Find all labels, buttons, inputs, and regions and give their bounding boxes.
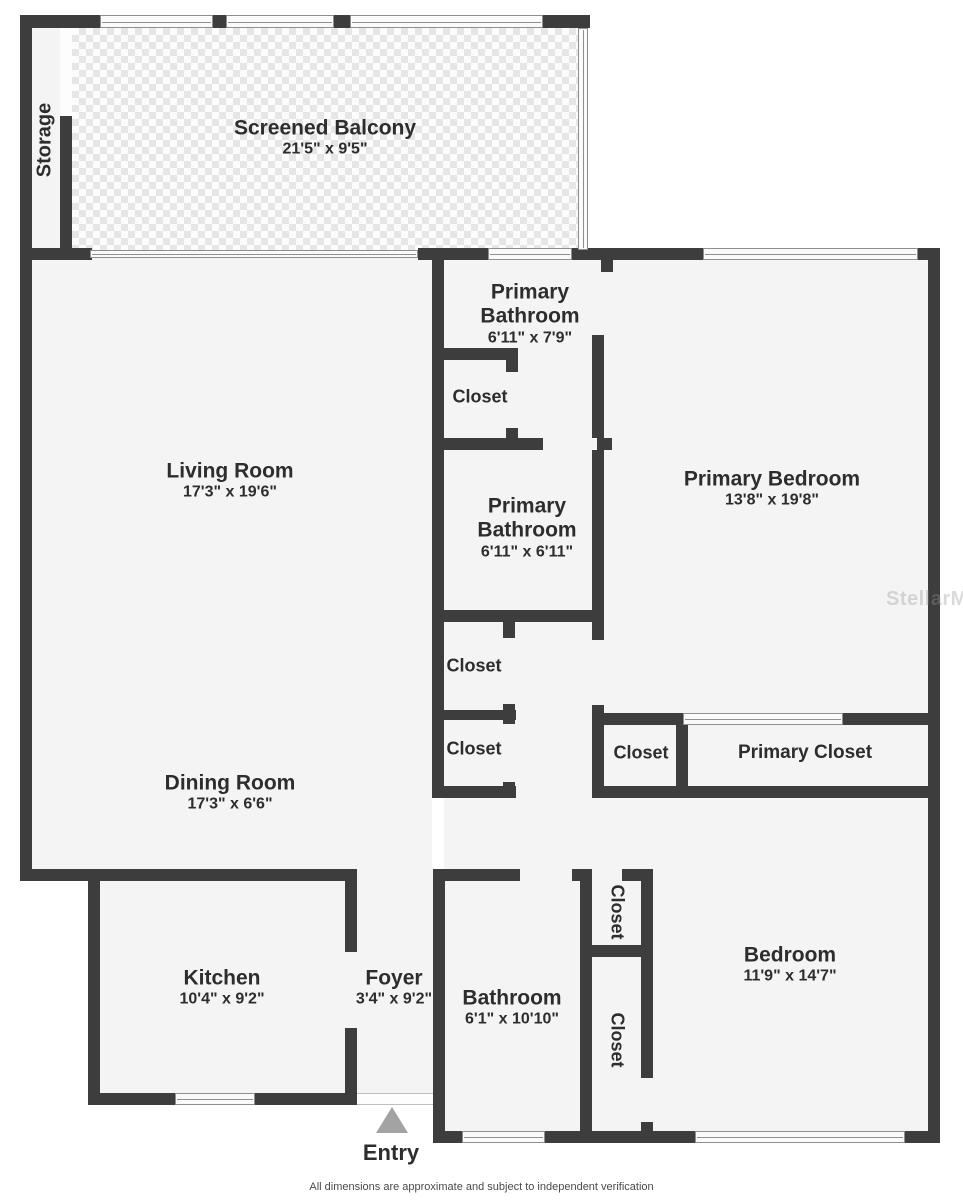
balcony-sliding-door xyxy=(90,250,418,258)
wall xyxy=(20,869,357,881)
wall xyxy=(20,248,92,260)
balcony-window xyxy=(100,15,213,28)
room-label-storage: Storage xyxy=(34,103,57,177)
wall xyxy=(580,881,592,1132)
door-gap xyxy=(503,638,515,704)
door-gap xyxy=(503,724,515,782)
balcony-screen-edge xyxy=(578,28,588,250)
wall xyxy=(432,786,516,798)
balcony-window xyxy=(226,15,334,28)
wall xyxy=(676,713,688,798)
primary-closet-opening xyxy=(683,713,843,725)
room-label-closet-e: Closet xyxy=(607,884,628,939)
kitchen-window xyxy=(175,1093,255,1105)
entry-arrow-icon xyxy=(376,1107,408,1133)
room-label-living: Living Room 17'3" x 19'6" xyxy=(166,460,293,503)
watermark: StellarMLS xyxy=(886,588,963,611)
primary-bath-window xyxy=(488,248,572,260)
wall xyxy=(601,258,613,272)
disclaimer-text: All dimensions are approximate and subje… xyxy=(0,1181,963,1193)
door-gap xyxy=(520,869,572,881)
primary-bedroom-window xyxy=(703,248,918,260)
door-gap xyxy=(543,438,597,450)
balcony-window xyxy=(350,15,543,28)
hall-floor xyxy=(516,798,653,869)
wall xyxy=(20,15,32,881)
door-gap xyxy=(60,28,72,116)
room-label-kitchen: Kitchen 10'4" x 9'2" xyxy=(179,967,264,1010)
room-label-closet-b: Closet xyxy=(446,656,501,677)
room-label-closet-a: Closet xyxy=(452,387,507,408)
entry-door-gap xyxy=(357,1093,433,1105)
wall xyxy=(580,945,653,957)
room-label-bedroom: Bedroom 11'9" x 14'7" xyxy=(743,944,836,987)
wall xyxy=(88,881,100,1105)
wall xyxy=(432,610,604,622)
room-label-dining: Dining Room 17'3" x 6'6" xyxy=(165,772,296,815)
primary-bedroom-floor xyxy=(604,260,928,870)
bathroom-window xyxy=(462,1131,545,1143)
wall xyxy=(928,786,940,1143)
wall xyxy=(592,786,940,798)
room-label-closet-d: Closet xyxy=(613,743,668,764)
door-gap xyxy=(641,800,653,862)
bedroom-window xyxy=(695,1131,905,1143)
foyer-top-floor xyxy=(357,869,433,881)
room-label-primary-closet: Primary Closet xyxy=(738,742,872,764)
room-label-foyer: Foyer 3'4" x 9'2" xyxy=(356,967,432,1010)
wall xyxy=(433,869,445,1143)
room-label-bathroom: Bathroom 6'1" x 10'10" xyxy=(462,987,561,1030)
room-label-primary-bath-2: Primary Bathroom 6'11" x 6'11" xyxy=(457,494,597,561)
door-gap xyxy=(641,1078,653,1122)
bedroom-upper-floor xyxy=(653,798,928,881)
room-label-closet-f: Closet xyxy=(607,1012,628,1067)
room-label-balcony: Screened Balcony 21'5" x 9'5" xyxy=(234,117,416,160)
wall xyxy=(592,335,604,640)
floor-plan: Storage Screened Balcony 21'5" x 9'5" Li… xyxy=(0,0,963,1200)
room-label-primary-bath-1: Primary Bathroom 6'11" x 7'9" xyxy=(460,280,600,347)
room-label-closet-c: Closet xyxy=(446,739,501,760)
room-label-primary-bedroom: Primary Bedroom 13'8" x 19'8" xyxy=(684,468,860,511)
entry-label: Entry xyxy=(363,1140,419,1166)
door-gap xyxy=(506,372,518,428)
door-gap xyxy=(592,869,622,881)
